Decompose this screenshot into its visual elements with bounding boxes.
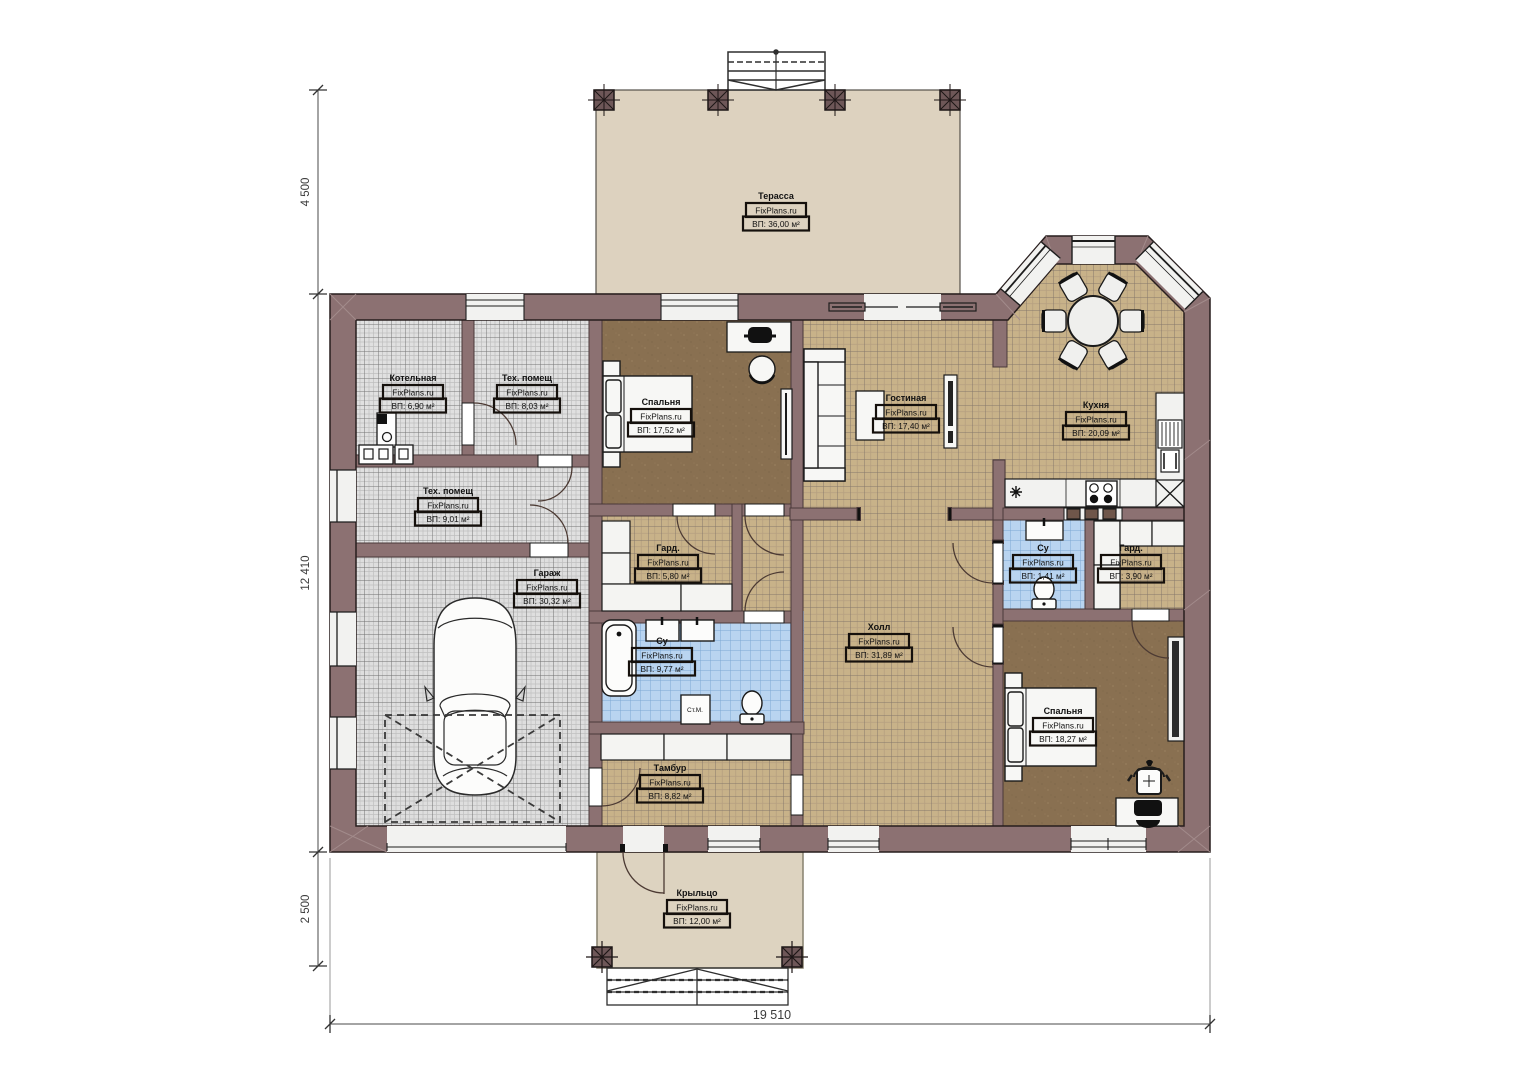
svg-text:Спальня: Спальня	[1044, 706, 1083, 716]
svg-text:FixPlans.ru: FixPlans.ru	[1110, 557, 1152, 567]
svg-text:Спальня: Спальня	[642, 397, 681, 407]
svg-text:Тамбур: Тамбур	[654, 763, 687, 773]
svg-text:FixPlans.ru: FixPlans.ru	[858, 636, 900, 646]
svg-text:ВП: 9,77 м²: ВП: 9,77 м²	[640, 664, 683, 674]
svg-text:ВП: 12,00 м²: ВП: 12,00 м²	[673, 916, 721, 926]
svg-text:FixPlans.ru: FixPlans.ru	[392, 387, 434, 397]
svg-text:12 410: 12 410	[300, 555, 312, 590]
svg-text:FixPlans.ru: FixPlans.ru	[641, 650, 683, 660]
svg-text:ВП: 17,52 м²: ВП: 17,52 м²	[637, 425, 685, 435]
svg-text:ВП: 17,40 м²: ВП: 17,40 м²	[882, 421, 930, 431]
svg-text:ВП: 3,90 м²: ВП: 3,90 м²	[1109, 571, 1152, 581]
svg-text:FixPlans.ru: FixPlans.ru	[1022, 557, 1064, 567]
svg-text:ВП: 30,32 м²: ВП: 30,32 м²	[523, 596, 571, 606]
svg-text:ВП: 6,90 м²: ВП: 6,90 м²	[391, 401, 434, 411]
svg-text:FixPlans.ru: FixPlans.ru	[640, 411, 682, 421]
svg-text:ВП: 18,27 м²: ВП: 18,27 м²	[1039, 734, 1087, 744]
svg-text:Тех. помещ: Тех. помещ	[423, 486, 473, 496]
svg-text:Кухня: Кухня	[1083, 400, 1109, 410]
svg-text:ВП: 8,03 м²: ВП: 8,03 м²	[505, 401, 548, 411]
svg-text:ВП: 31,89 м²: ВП: 31,89 м²	[855, 650, 903, 660]
svg-text:Тех. помещ: Тех. помещ	[502, 373, 552, 383]
svg-text:FixPlans.ru: FixPlans.ru	[885, 407, 927, 417]
svg-text:Су: Су	[656, 636, 668, 646]
svg-text:FixPlans.ru: FixPlans.ru	[755, 205, 797, 215]
svg-text:FixPlans.ru: FixPlans.ru	[506, 387, 548, 397]
svg-text:Гостиная: Гостиная	[886, 393, 927, 403]
svg-text:ВП: 5,80 м²: ВП: 5,80 м²	[646, 571, 689, 581]
svg-text:FixPlans.ru: FixPlans.ru	[676, 902, 718, 912]
svg-text:FixPlans.ru: FixPlans.ru	[1075, 414, 1117, 424]
svg-text:FixPlans.ru: FixPlans.ru	[1042, 720, 1084, 730]
svg-text:Су: Су	[1037, 543, 1049, 553]
svg-text:FixPlans.ru: FixPlans.ru	[649, 777, 691, 787]
svg-text:2 500: 2 500	[300, 895, 312, 924]
svg-text:Котельная: Котельная	[389, 373, 436, 383]
svg-text:FixPlans.ru: FixPlans.ru	[647, 557, 689, 567]
svg-text:ВП: 9,01 м²: ВП: 9,01 м²	[426, 514, 469, 524]
svg-text:Терасса: Терасса	[758, 191, 795, 201]
svg-text:Гард.: Гард.	[1119, 543, 1142, 553]
svg-text:ВП: 1,41 м²: ВП: 1,41 м²	[1021, 571, 1064, 581]
svg-text:ВП: 36,00 м²: ВП: 36,00 м²	[752, 219, 800, 229]
svg-text:19 510: 19 510	[753, 1008, 791, 1022]
svg-text:FixPlans.ru: FixPlans.ru	[427, 500, 469, 510]
svg-text:4 500: 4 500	[300, 178, 312, 207]
svg-text:ВП: 20,09 м²: ВП: 20,09 м²	[1072, 428, 1120, 438]
svg-text:Ст.М.: Ст.М.	[687, 707, 703, 714]
svg-text:Крыльцо: Крыльцо	[677, 888, 718, 898]
svg-text:FixPlans.ru: FixPlans.ru	[526, 582, 568, 592]
svg-text:Гард.: Гард.	[656, 543, 679, 553]
svg-text:Холл: Холл	[868, 622, 891, 632]
svg-text:ВП: 8,82 м²: ВП: 8,82 м²	[648, 791, 691, 801]
svg-text:Гараж: Гараж	[534, 568, 561, 578]
